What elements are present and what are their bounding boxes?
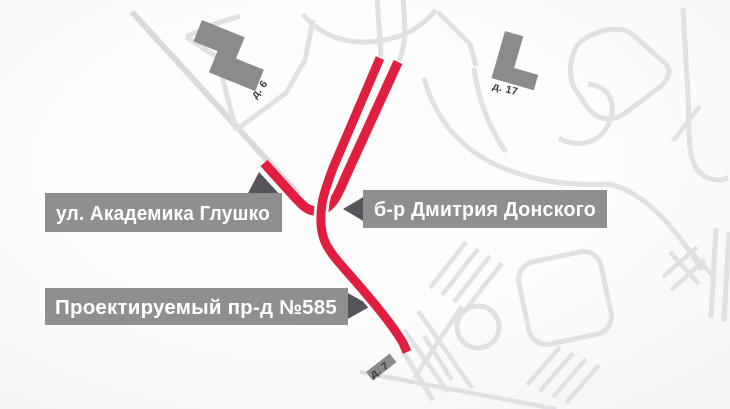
road-line [711, 228, 716, 318]
roundabout-circle [457, 306, 499, 348]
road-line [418, 311, 472, 388]
road-line [303, 10, 436, 42]
road-line [566, 365, 599, 403]
road-line [438, 12, 476, 66]
road-line [442, 249, 478, 295]
street-label-donskogo: б-р Дмитрия Донского [343, 190, 607, 228]
road-line [399, 0, 405, 61]
road-line [683, 8, 728, 180]
road-line [527, 347, 560, 385]
road-line [540, 353, 573, 391]
road-line [430, 242, 466, 288]
road-line [553, 359, 586, 397]
road-line [360, 372, 556, 409]
road-line [466, 263, 502, 309]
block-outline [515, 248, 615, 348]
building-captions: д. 6 д. 17 д. 7 [249, 78, 519, 380]
road-line [377, 0, 381, 57]
map-stage: д. 6 д. 17 д. 7 ул. Академика Глушко б-р… [0, 0, 730, 409]
road-line [559, 84, 612, 143]
label-text: Проектируемый пр-д №585 [55, 297, 337, 319]
label-text: б-р Дмитрия Донского [374, 199, 596, 221]
label-pointer [343, 196, 365, 222]
road-line [570, 29, 668, 119]
street-label-proezd: Проектируемый пр-д №585 [45, 288, 371, 325]
road-line [424, 78, 702, 270]
label-text: ул. Академика Глушко [56, 203, 270, 225]
street-label-glushko: ул. Академика Глушко [45, 172, 282, 232]
hash-crossing-icon [663, 243, 712, 290]
road-line [724, 232, 729, 322]
road-line [454, 256, 490, 302]
map-canvas: д. 6 д. 17 д. 7 ул. Академика Глушко б-р… [0, 0, 730, 409]
